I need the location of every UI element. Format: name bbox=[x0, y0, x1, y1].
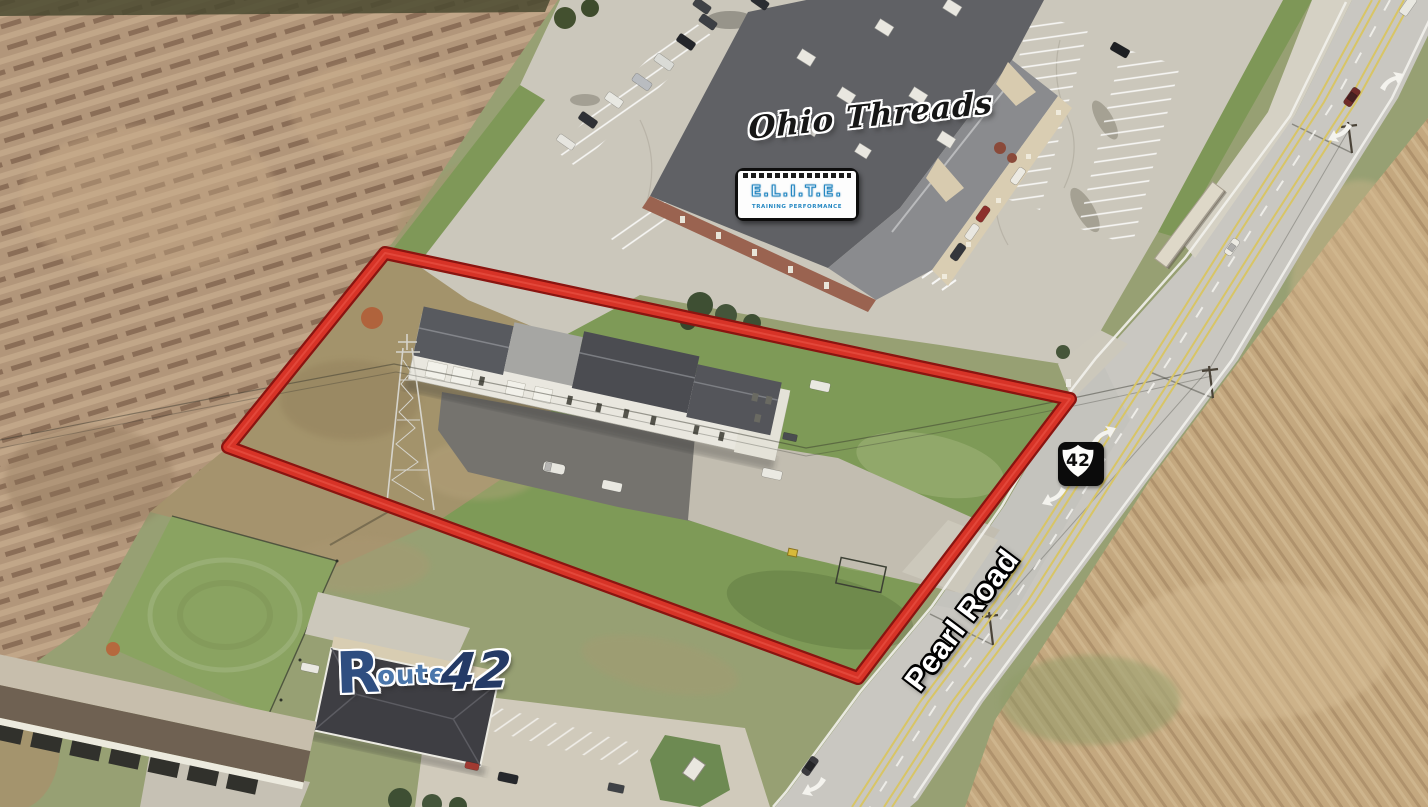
us-route-42-shield: 42 bbox=[1058, 442, 1104, 486]
elite-logo-top-ticks bbox=[743, 173, 851, 178]
elite-logo-panel: E.L.I.T.E. TRAINING PERFORMANCE bbox=[738, 171, 856, 218]
aerial-scene bbox=[0, 0, 1428, 807]
road-sign-post bbox=[1066, 379, 1071, 387]
elite-logo: E.L.I.T.E. TRAINING PERFORMANCE bbox=[735, 168, 859, 221]
elite-logo-title: E.L.I.T.E. bbox=[751, 184, 843, 199]
autumn-tree bbox=[361, 307, 383, 329]
pearl-road-label: Pearl Road bbox=[897, 543, 1026, 698]
autumn-tree bbox=[106, 642, 120, 656]
elite-logo-subtitle: TRAINING PERFORMANCE bbox=[752, 205, 842, 211]
aerial-photo: Ohio Threads E.L.I.T.E. TRAINING PERFORM… bbox=[0, 0, 1428, 807]
route-shield-number: 42 bbox=[1066, 451, 1090, 471]
route-42-logo-number: 42 bbox=[439, 649, 513, 694]
us-route-shield-icon: 42 bbox=[1058, 442, 1098, 480]
route-42-logo-oute: oute bbox=[377, 659, 448, 691]
route-42-logo-r: R bbox=[335, 650, 381, 698]
route-42-logo: R oute 42 bbox=[335, 645, 511, 698]
yellow-dumpster bbox=[787, 548, 797, 557]
